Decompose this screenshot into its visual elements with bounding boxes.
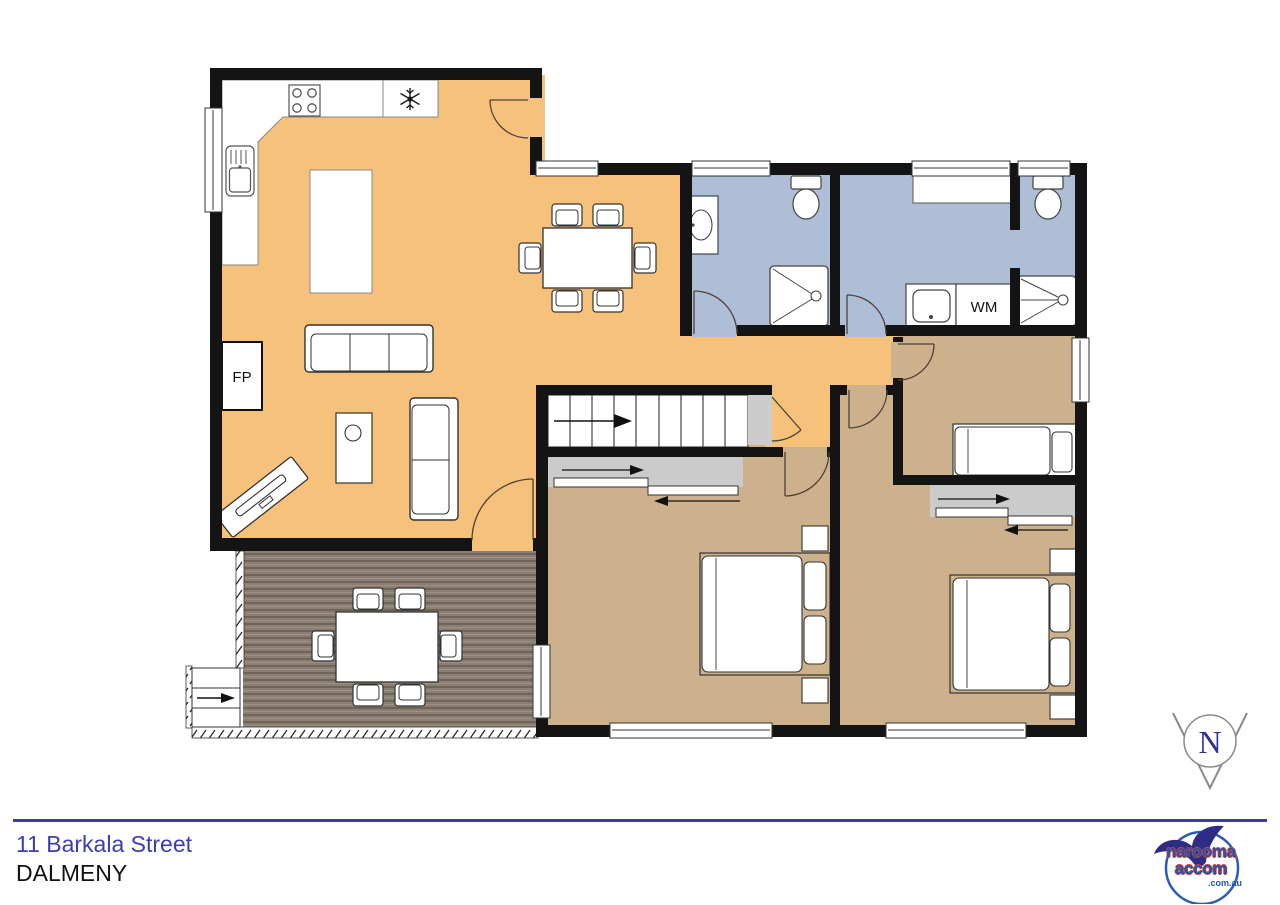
- window: [536, 161, 598, 176]
- dining-chair: [552, 204, 582, 226]
- bedside-table: [802, 526, 828, 551]
- address-suburb: DALMENY: [16, 859, 192, 888]
- laundry-bench: [913, 174, 1012, 203]
- window: [886, 723, 1026, 738]
- outdoor-table: [336, 612, 438, 682]
- dining-chair: [634, 243, 656, 273]
- dining-chair: [593, 204, 623, 226]
- outdoor-chair: [312, 631, 334, 661]
- bedside-table: [802, 678, 828, 703]
- room-living-floor: [215, 75, 545, 541]
- window: [912, 161, 1010, 176]
- pillow: [1050, 638, 1070, 686]
- kitchen-sink-icon: [226, 146, 254, 196]
- dining-chair: [552, 290, 582, 312]
- toilet-icon: [1033, 176, 1063, 219]
- washing-machine: WM: [956, 284, 1012, 328]
- dining-chair: [593, 290, 623, 312]
- window: [1018, 161, 1070, 176]
- hallway-floor: [680, 328, 898, 390]
- deck-steps: [192, 668, 240, 727]
- sofa-two-seat: [410, 398, 458, 520]
- window: [205, 108, 222, 212]
- toilet-icon: [791, 176, 821, 219]
- property-address: 11 Barkala Street DALMENY: [16, 830, 192, 888]
- floorplan-drawing: FP: [0, 0, 1280, 815]
- pillow: [1052, 432, 1072, 472]
- deck-rail-left: [236, 551, 244, 668]
- bedside-table: [1050, 549, 1077, 573]
- coffee-table: [336, 413, 372, 483]
- pillow: [1050, 584, 1070, 632]
- north-compass: N: [1173, 713, 1247, 788]
- pillow: [804, 616, 826, 664]
- outdoor-chair: [440, 631, 462, 661]
- logo-word-domain: .com.au: [1138, 878, 1242, 888]
- window: [1072, 338, 1089, 402]
- laundry-tub-icon: [906, 284, 956, 328]
- sliding-door-panel: [554, 478, 648, 487]
- staircase: [548, 395, 772, 447]
- bed-bedroom1-single: [953, 424, 1077, 478]
- steps-rail-left: [186, 666, 192, 728]
- outdoor-chair: [353, 588, 383, 610]
- outdoor-chair: [395, 684, 425, 706]
- sliding-door-panel: [936, 508, 1008, 517]
- window: [533, 645, 550, 718]
- shower-icon: [770, 266, 828, 326]
- sliding-door-panel: [648, 486, 738, 495]
- dining-chair: [519, 243, 541, 273]
- stair-landing: [748, 395, 772, 445]
- fireplace-label: FP: [232, 369, 251, 386]
- washing-machine-label: WM: [971, 299, 998, 316]
- compass-north-label: N: [1198, 724, 1221, 760]
- window: [692, 161, 770, 176]
- deck-rail-bottom: [192, 727, 538, 738]
- address-street: 11 Barkala Street: [16, 830, 192, 859]
- logo-word-accom: accom: [1138, 859, 1264, 879]
- window: [610, 723, 772, 738]
- dining-table: [543, 228, 632, 288]
- narooma-accom-logo: narooma accom .com.au: [1138, 822, 1264, 904]
- footer-divider-rule: [13, 819, 1267, 822]
- outdoor-chair: [395, 588, 425, 610]
- shower-icon: [1018, 276, 1076, 326]
- floorplan-page: FP: [0, 0, 1280, 905]
- kitchen-island: [310, 170, 372, 293]
- pillow: [804, 562, 826, 610]
- sliding-door-panel: [1008, 516, 1072, 525]
- outdoor-chair: [353, 684, 383, 706]
- bedside-table: [1050, 695, 1077, 719]
- sofa-three-seat: [305, 325, 433, 372]
